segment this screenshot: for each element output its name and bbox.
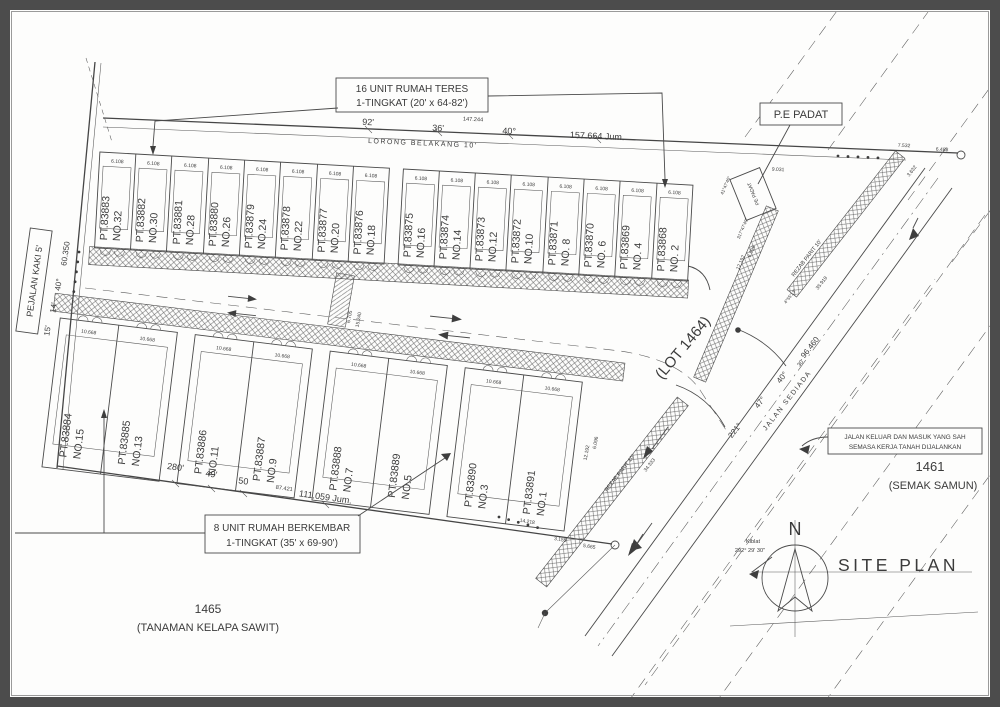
site-plan-drawing: 6.1086.108 6.1086.108 6.1086.108 6.1086.… xyxy=(0,0,1000,707)
svg-text:6.108: 6.108 xyxy=(414,176,427,183)
svg-text:6.108: 6.108 xyxy=(111,159,124,166)
dim-label: 50 xyxy=(238,475,249,486)
lot-no-label: NO.26 xyxy=(220,216,234,247)
svg-text:6.108: 6.108 xyxy=(486,180,499,187)
lot-pt-label: PT.83874 xyxy=(437,215,451,260)
lot-no-label: NO.18 xyxy=(365,224,379,255)
lot-no-label: NO. 2 xyxy=(668,244,682,272)
lot-pt-label: PT.83869 xyxy=(618,225,632,270)
svg-text:6.108: 6.108 xyxy=(184,163,197,170)
lot-no-label: NO.22 xyxy=(292,220,306,251)
dim-label: 36' xyxy=(432,123,444,134)
svg-text:6.108: 6.108 xyxy=(147,161,160,168)
svg-text:6.108: 6.108 xyxy=(220,165,233,172)
region-label-1465-desc: (TANAMAN KELAPA SAWIT) xyxy=(137,622,279,634)
lot-pt-label: PT.83881 xyxy=(171,200,185,245)
site-plan-title: SITE PLAN xyxy=(838,555,959,575)
lot-no-label: NO.28 xyxy=(184,214,198,245)
lot-pt-label: PT.83868 xyxy=(655,227,669,272)
lot-pt-label: PT.83877 xyxy=(316,208,330,253)
dim-label: 40° xyxy=(53,278,64,291)
lot-pt-label: PT.83876 xyxy=(352,210,366,255)
lot-no-label: NO.24 xyxy=(256,218,270,249)
svg-text:6.108: 6.108 xyxy=(256,167,269,174)
lot-no-label: NO.10 xyxy=(522,233,536,264)
dim-label: 14' xyxy=(48,301,58,313)
svg-text:6.108: 6.108 xyxy=(450,178,463,185)
lot-no-label: NO. 4 xyxy=(631,242,645,270)
svg-text:6.108: 6.108 xyxy=(329,171,342,178)
lot-no-label: NO.12 xyxy=(486,231,500,262)
site-plan-page: 6.1086.108 6.1086.108 6.1086.108 6.1086.… xyxy=(0,0,1000,707)
lot-no-label: NO.30 xyxy=(147,212,161,243)
lot-pt-label: PT.83879 xyxy=(243,204,257,249)
lot-pt-label: PT.83870 xyxy=(582,223,596,268)
lot-pt-label: PT.83878 xyxy=(279,206,293,251)
lot-no-label: NO. 6 xyxy=(595,240,609,268)
teres-line1: 16 UNIT RUMAH TERES xyxy=(356,84,469,95)
region-label-1461: 1461 xyxy=(916,459,945,474)
lot-pt-label: PT.83875 xyxy=(401,213,415,258)
lot-no-label: NO.14 xyxy=(450,229,464,260)
lot-pt-label: PT.83872 xyxy=(509,219,523,264)
dim-label: 40° xyxy=(502,126,516,137)
north-label: N xyxy=(789,519,802,539)
kiblat-label: Kiblat xyxy=(746,539,760,545)
pe-padat-label: P.E PADAT xyxy=(774,109,829,121)
lot-pt-label: PT.83882 xyxy=(134,198,148,243)
jalan-keluar-line2: SEMASA KERJA TANAH DIJALANKAN xyxy=(849,444,962,451)
lot-pt-label: PT.83871 xyxy=(546,221,560,266)
svg-text:6.108: 6.108 xyxy=(365,173,378,180)
region-label-1461-desc: (SEMAK SAMUN) xyxy=(889,480,978,492)
lot-pt-label: PT.83873 xyxy=(473,217,487,262)
dim-label: 49' xyxy=(205,468,218,480)
lot-no-label: NO.32 xyxy=(111,210,125,241)
lot-no-label: NO.16 xyxy=(414,227,428,258)
svg-text:6.108: 6.108 xyxy=(595,186,608,193)
dim-label: 147.244 xyxy=(463,117,483,124)
svg-text:6.108: 6.108 xyxy=(559,184,572,191)
teres-line2: 1-TINGKAT (20' x 64-82') xyxy=(356,98,468,109)
dim-label: 15' xyxy=(42,324,52,336)
berkembar-line2: 1-TINGKAT (35' x 69-90') xyxy=(226,538,338,549)
svg-text:6.108: 6.108 xyxy=(668,190,681,197)
kiblat-bearing: 292° 29' 30" xyxy=(735,548,765,554)
jalan-keluar-line1: JALAN KELUAR DAN MASUK YANG SAH xyxy=(844,434,966,441)
svg-text:6.108: 6.108 xyxy=(522,182,535,189)
dim-label: 92' xyxy=(362,117,374,128)
lot-no-label: NO.20 xyxy=(329,222,343,253)
svg-text:6.108: 6.108 xyxy=(292,169,305,176)
lot-pt-label: PT.83880 xyxy=(207,202,221,247)
dim-label: 9.031 xyxy=(772,167,785,174)
region-label-1465: 1465 xyxy=(195,602,222,616)
dim-label: 7.532 xyxy=(898,143,911,150)
svg-text:6.108: 6.108 xyxy=(631,188,644,195)
lot-pt-label: PT.83883 xyxy=(98,196,112,241)
lot-no-label: NO. 8 xyxy=(559,238,573,266)
berkembar-line1: 8 UNIT RUMAH BERKEMBAR xyxy=(214,523,351,534)
dim-label: 6.488 xyxy=(936,147,949,154)
